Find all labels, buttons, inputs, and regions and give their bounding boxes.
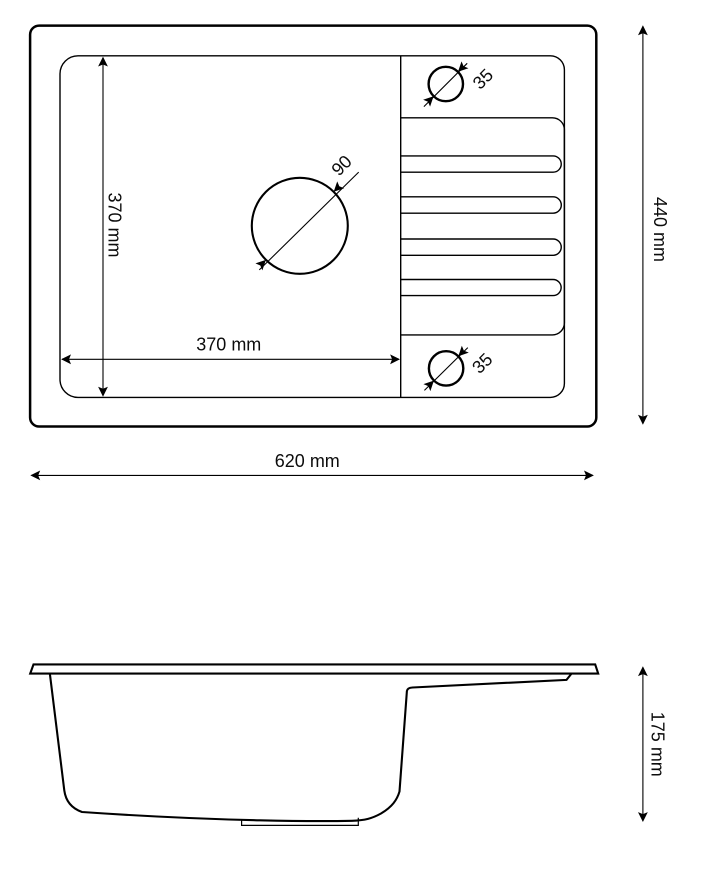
svg-text:620 mm: 620 mm xyxy=(275,451,340,471)
svg-text:90: 90 xyxy=(328,151,356,179)
svg-text:35: 35 xyxy=(469,65,497,93)
svg-text:175 mm: 175 mm xyxy=(648,712,668,777)
svg-text:440 mm: 440 mm xyxy=(650,197,670,262)
svg-text:370 mm: 370 mm xyxy=(105,192,125,257)
svg-text:35: 35 xyxy=(468,349,496,377)
svg-text:370 mm: 370 mm xyxy=(196,334,261,354)
